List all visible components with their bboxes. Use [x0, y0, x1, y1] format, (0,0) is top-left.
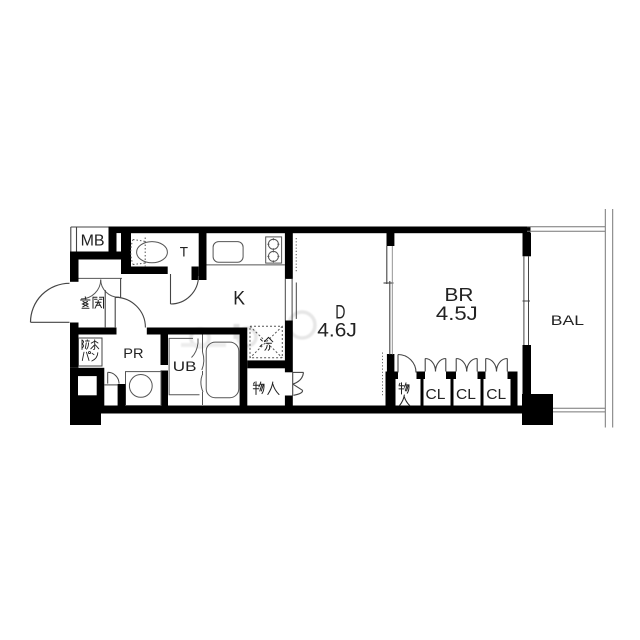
svg-text:CL: CL: [486, 386, 506, 403]
svg-text:CL: CL: [456, 386, 476, 403]
svg-text:MB: MB: [81, 233, 105, 250]
svg-text:4.5J: 4.5J: [436, 303, 478, 325]
svg-text:BAL: BAL: [551, 313, 585, 328]
svg-text:4.6J: 4.6J: [317, 320, 357, 342]
svg-text:K: K: [233, 289, 245, 310]
svg-text:BR: BR: [445, 284, 474, 305]
svg-text:UB: UB: [173, 358, 197, 374]
svg-text:CL: CL: [426, 386, 446, 403]
svg-text:T: T: [180, 245, 188, 260]
svg-text:PR: PR: [123, 346, 144, 361]
